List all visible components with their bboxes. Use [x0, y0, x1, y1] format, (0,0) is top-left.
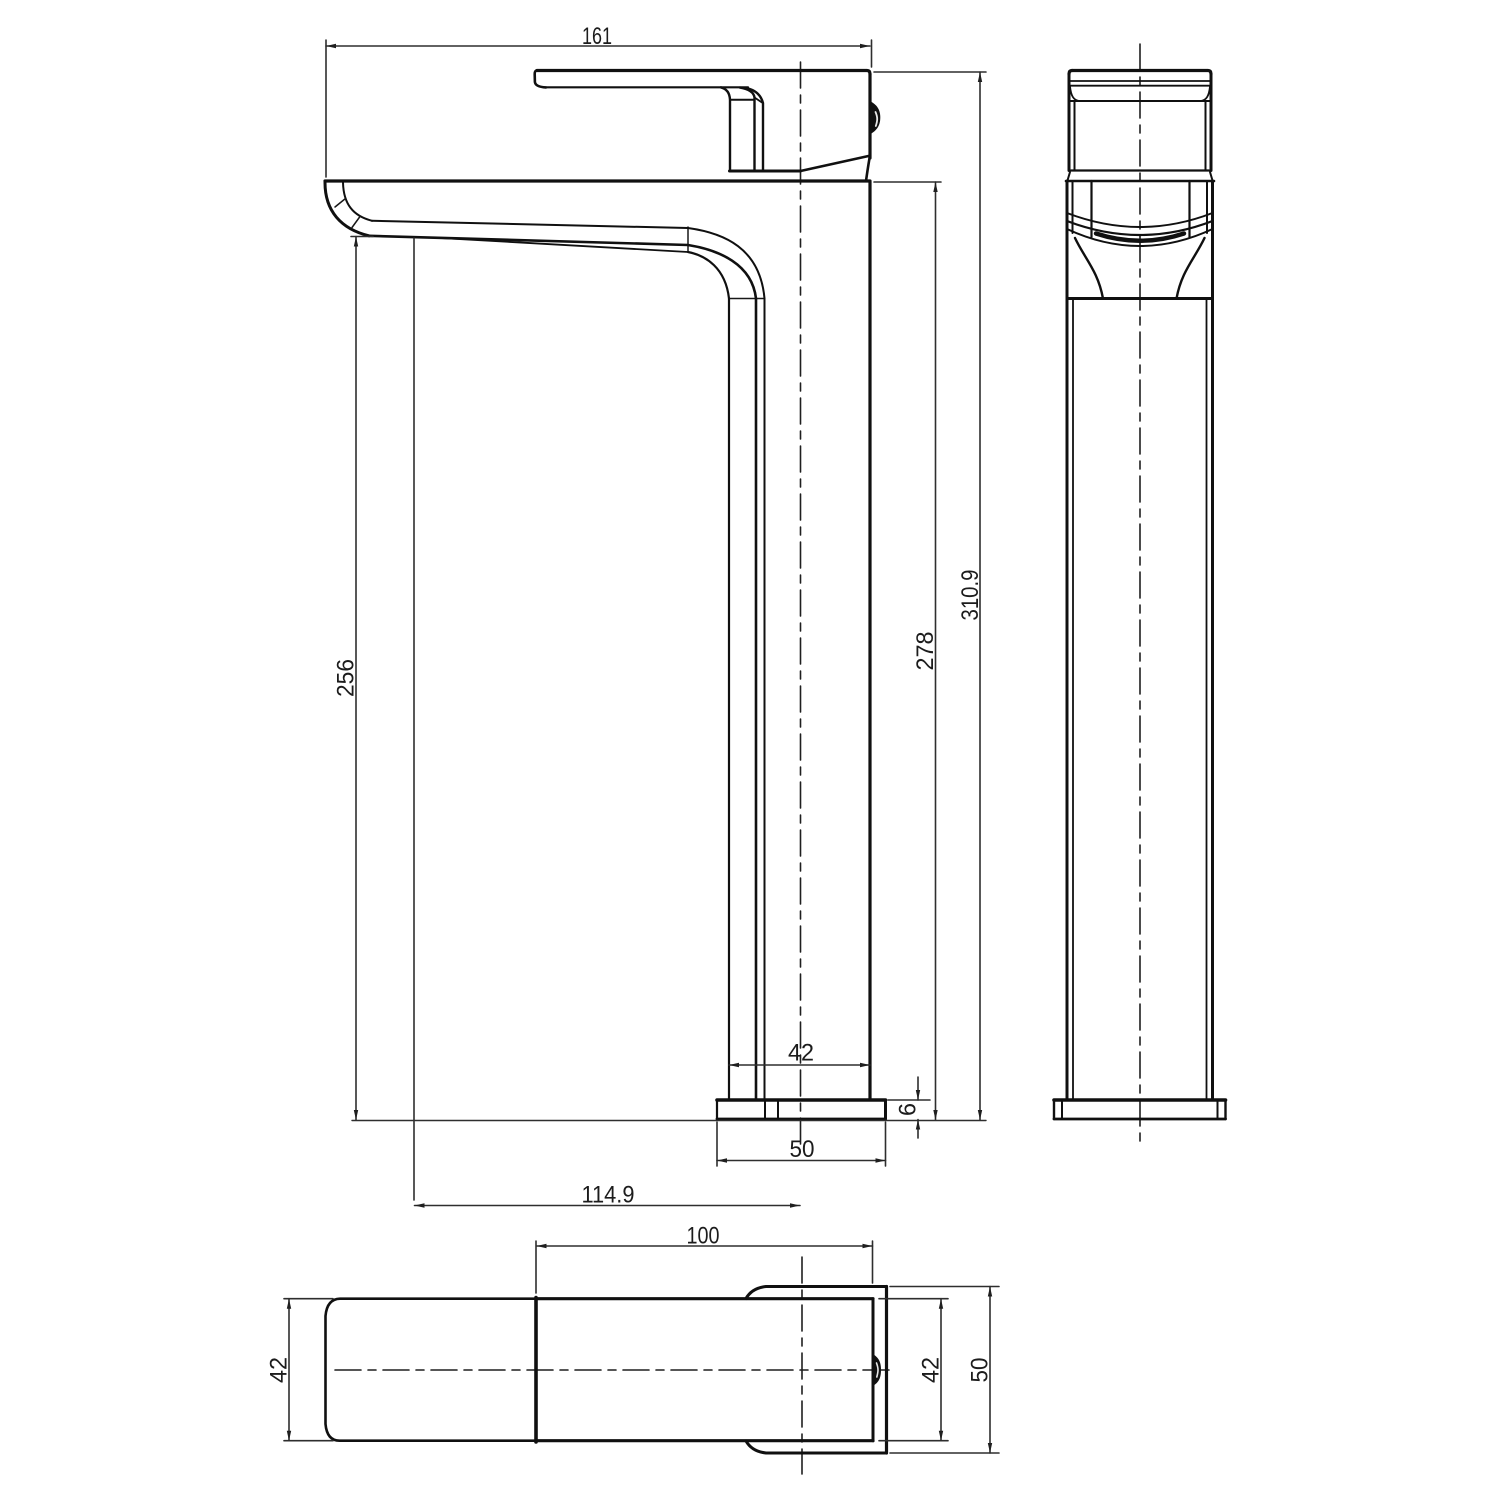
- svg-text:278: 278: [912, 632, 939, 671]
- svg-text:100: 100: [687, 1223, 720, 1250]
- svg-text:6: 6: [895, 1103, 922, 1116]
- svg-text:161: 161: [582, 23, 612, 50]
- svg-text:256: 256: [333, 659, 360, 697]
- svg-text:42: 42: [918, 1357, 945, 1383]
- svg-text:310.9: 310.9: [957, 570, 984, 621]
- svg-text:50: 50: [967, 1358, 994, 1383]
- svg-text:42: 42: [266, 1357, 293, 1383]
- svg-text:50: 50: [790, 1136, 815, 1163]
- svg-text:114.9: 114.9: [582, 1182, 635, 1209]
- svg-text:42: 42: [788, 1040, 814, 1067]
